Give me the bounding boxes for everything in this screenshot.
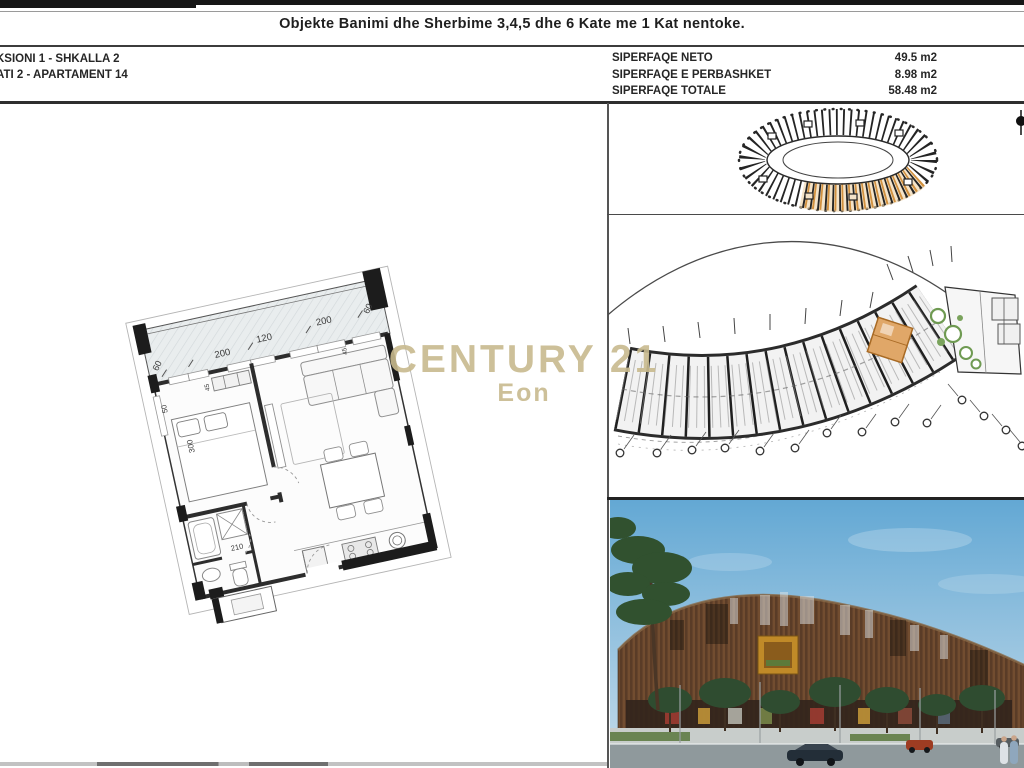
area-row: SIPERFAQE NETO 49.5 m2 — [612, 50, 942, 67]
page-title: Objekte Banimi dhe Sherbime 3,4,5 dhe 6 … — [0, 16, 1024, 32]
section-line: KSIONI 1 - SHKALLA 2 — [0, 51, 396, 67]
header-divider-line — [0, 45, 1024, 47]
site-overview-diagram — [608, 105, 1024, 215]
area-row: SIPERFAQE TOTALE 58.48 m2 — [612, 83, 942, 100]
tree-icon — [972, 360, 981, 369]
north-arrow-icon — [1016, 110, 1024, 135]
area-row: SIPERFAQE E PERBASHKET 8.98 m2 — [612, 67, 942, 84]
tree-icon — [931, 309, 945, 323]
building-render — [610, 500, 1024, 768]
area-label: SIPERFAQE NETO — [612, 50, 827, 67]
grass-strip — [850, 734, 910, 741]
tree-icon — [945, 326, 961, 342]
tree-icon — [937, 338, 945, 346]
tree-icon — [960, 347, 972, 359]
apartment-line: ATI 2 - APARTAMENT 14 — [0, 67, 396, 83]
right-panel-divider-1 — [607, 214, 1024, 215]
orange-accent — [758, 636, 798, 674]
area-label: SIPERFAQE E PERBASHKET — [612, 67, 827, 84]
apartment-floor-plan: 60 200 120 200 60 45 45 50 300 210 — [0, 105, 607, 768]
tree-icon — [957, 315, 963, 321]
plan-sheet: Objekte Banimi dhe Sherbime 3,4,5 dhe 6 … — [0, 0, 1024, 768]
area-value: 58.48 m2 — [827, 83, 937, 100]
grass-strip — [610, 732, 690, 741]
key-plan-diagram — [608, 216, 1024, 497]
content-top-line — [0, 101, 1024, 104]
project-info: KSIONI 1 - SHKALLA 2 ATI 2 - APARTAMENT … — [0, 51, 396, 83]
area-value: 49.5 m2 — [827, 50, 937, 67]
sheet-bottom-border — [0, 762, 607, 766]
sheet-top-border-left — [0, 5, 196, 8]
site-courtyard — [783, 142, 893, 178]
sheet-top-thin-line — [0, 11, 1024, 12]
area-label: SIPERFAQE TOTALE — [612, 83, 827, 100]
area-value: 8.98 m2 — [827, 67, 937, 84]
area-table: SIPERFAQE NETO 49.5 m2 SIPERFAQE E PERBA… — [612, 50, 942, 100]
